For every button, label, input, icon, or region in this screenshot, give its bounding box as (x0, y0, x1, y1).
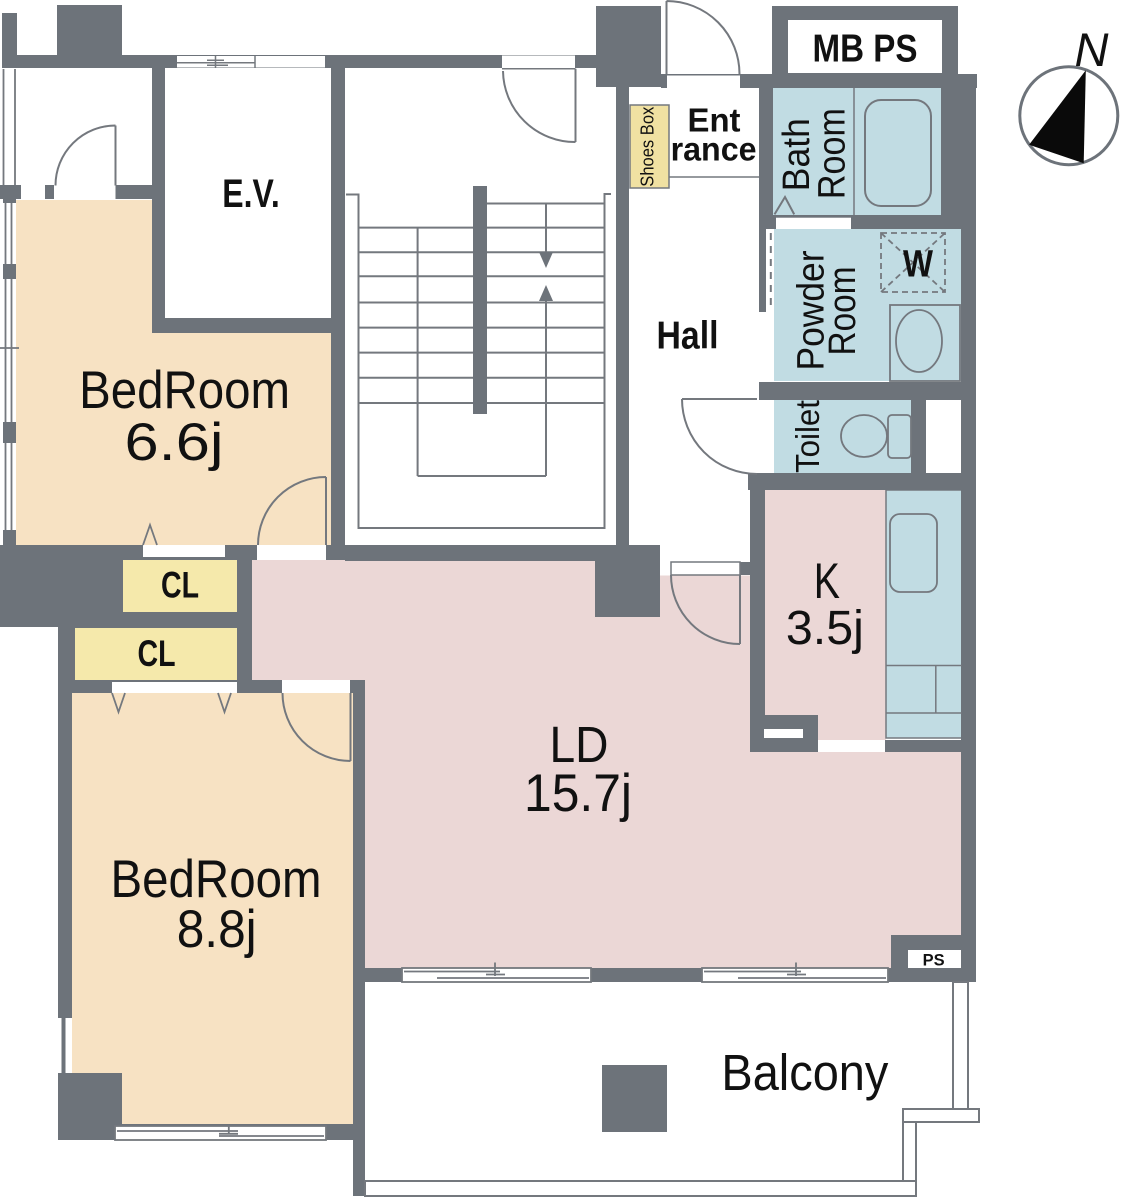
svg-text:N: N (1075, 23, 1109, 76)
svg-text:PS: PS (923, 951, 945, 970)
svg-text:E.V.: E.V. (222, 172, 280, 216)
svg-text:BedRoom: BedRoom (79, 361, 290, 420)
svg-text:Shoes Box: Shoes Box (638, 107, 658, 187)
svg-text:Balcony: Balcony (721, 1044, 888, 1101)
svg-text:CL: CL (138, 633, 176, 674)
svg-text:rance: rance (671, 131, 757, 168)
svg-text:Toilet: Toilet (789, 400, 826, 473)
svg-text:MB PS: MB PS (813, 28, 918, 71)
svg-text:CL: CL (161, 565, 199, 606)
svg-text:3.5j: 3.5j (786, 602, 864, 655)
svg-text:Hall: Hall (657, 314, 719, 357)
svg-text:15.7j: 15.7j (524, 764, 632, 823)
svg-text:6.6j: 6.6j (125, 413, 224, 472)
svg-text:W: W (903, 244, 933, 286)
svg-text:Room: Room (811, 108, 853, 199)
svg-text:Room: Room (822, 267, 864, 356)
svg-text:K: K (814, 553, 840, 609)
svg-text:8.8j: 8.8j (177, 900, 257, 959)
